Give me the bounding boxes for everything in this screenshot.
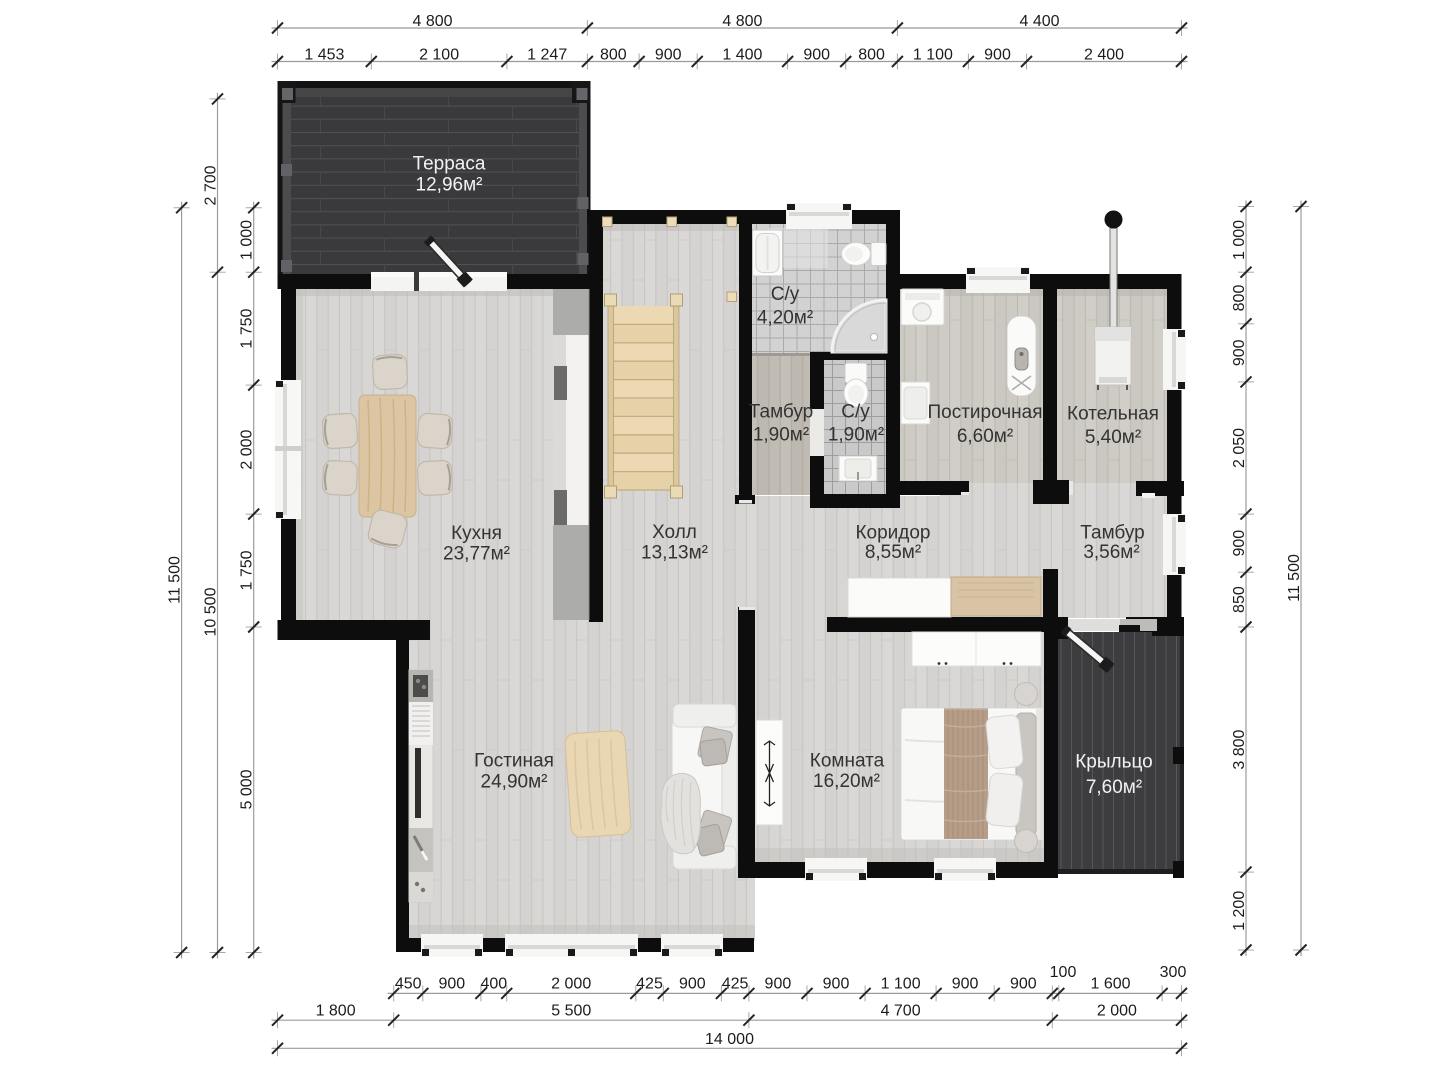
svg-text:10 500: 10 500 xyxy=(203,587,220,636)
svg-text:6,60м²: 6,60м² xyxy=(957,426,1013,447)
svg-text:1,90м²: 1,90м² xyxy=(828,425,884,446)
svg-text:Холл: Холл xyxy=(652,522,697,543)
svg-text:900: 900 xyxy=(803,47,830,64)
svg-text:100: 100 xyxy=(1050,964,1077,981)
svg-text:1 453: 1 453 xyxy=(304,47,344,64)
svg-text:Тамбур: Тамбур xyxy=(749,402,814,423)
svg-text:13,13м²: 13,13м² xyxy=(641,543,708,564)
svg-text:800: 800 xyxy=(858,47,885,64)
svg-text:1 000: 1 000 xyxy=(239,220,256,260)
svg-text:1 800: 1 800 xyxy=(316,1003,356,1020)
svg-text:900: 900 xyxy=(1010,976,1037,993)
svg-text:14 000: 14 000 xyxy=(705,1031,754,1048)
svg-text:2 700: 2 700 xyxy=(203,165,220,205)
svg-text:900: 900 xyxy=(1231,530,1248,557)
svg-text:Комната: Комната xyxy=(810,751,885,772)
svg-text:Кухня: Кухня xyxy=(451,523,502,544)
svg-text:450: 450 xyxy=(395,976,422,993)
svg-text:400: 400 xyxy=(480,976,507,993)
svg-text:900: 900 xyxy=(655,47,682,64)
svg-text:425: 425 xyxy=(722,976,749,993)
svg-text:С/у: С/у xyxy=(771,284,800,305)
svg-text:2 100: 2 100 xyxy=(419,47,459,64)
svg-text:4,20м²: 4,20м² xyxy=(757,308,813,329)
svg-text:5 500: 5 500 xyxy=(551,1003,591,1020)
svg-text:4 800: 4 800 xyxy=(722,13,762,30)
svg-text:4 700: 4 700 xyxy=(881,1003,921,1020)
svg-text:11 500: 11 500 xyxy=(1286,554,1303,602)
svg-text:Крыльцо: Крыльцо xyxy=(1075,752,1153,773)
svg-text:1 750: 1 750 xyxy=(239,550,256,590)
svg-text:Тамбур: Тамбур xyxy=(1080,523,1145,544)
svg-text:Коридор: Коридор xyxy=(855,523,930,544)
svg-text:2 000: 2 000 xyxy=(239,429,256,469)
svg-text:3 800: 3 800 xyxy=(1231,729,1248,769)
svg-text:900: 900 xyxy=(1231,339,1248,366)
svg-text:2 400: 2 400 xyxy=(1084,47,1124,64)
svg-text:23,77м²: 23,77м² xyxy=(443,544,510,565)
svg-text:Котельная: Котельная xyxy=(1067,404,1159,425)
svg-text:11 500: 11 500 xyxy=(167,556,184,604)
svg-text:850: 850 xyxy=(1231,586,1248,613)
svg-text:Гостиная: Гостиная xyxy=(474,751,554,772)
svg-text:5 000: 5 000 xyxy=(239,769,256,809)
svg-text:1 400: 1 400 xyxy=(722,47,762,64)
svg-text:1 000: 1 000 xyxy=(1231,220,1248,260)
svg-text:800: 800 xyxy=(600,47,627,64)
svg-text:Терраса: Терраса xyxy=(413,154,486,175)
svg-text:1 750: 1 750 xyxy=(239,308,256,348)
svg-text:4 800: 4 800 xyxy=(412,13,452,30)
svg-text:2 000: 2 000 xyxy=(1097,1003,1137,1020)
svg-text:1 100: 1 100 xyxy=(881,976,921,993)
svg-text:4 400: 4 400 xyxy=(1019,13,1059,30)
svg-text:2 050: 2 050 xyxy=(1231,428,1248,468)
svg-text:1 247: 1 247 xyxy=(527,47,567,64)
svg-text:900: 900 xyxy=(765,976,792,993)
svg-text:16,20м²: 16,20м² xyxy=(813,771,880,792)
svg-text:900: 900 xyxy=(823,976,850,993)
svg-text:5,40м²: 5,40м² xyxy=(1085,427,1141,448)
svg-text:900: 900 xyxy=(438,976,465,993)
svg-text:1 200: 1 200 xyxy=(1231,891,1248,931)
svg-text:С/у: С/у xyxy=(841,402,870,423)
svg-text:24,90м²: 24,90м² xyxy=(481,772,548,793)
svg-text:7,60м²: 7,60м² xyxy=(1086,777,1142,798)
svg-text:900: 900 xyxy=(952,976,979,993)
svg-text:8,55м²: 8,55м² xyxy=(865,542,921,563)
svg-text:3,56м²: 3,56м² xyxy=(1083,542,1139,563)
svg-text:2 000: 2 000 xyxy=(551,976,591,993)
svg-text:1 600: 1 600 xyxy=(1090,976,1130,993)
svg-text:900: 900 xyxy=(984,47,1011,64)
svg-text:800: 800 xyxy=(1231,285,1248,312)
svg-text:Постирочная: Постирочная xyxy=(927,402,1042,423)
svg-text:12,96м²: 12,96м² xyxy=(416,175,483,196)
svg-text:900: 900 xyxy=(679,976,706,993)
svg-text:425: 425 xyxy=(636,976,663,993)
svg-text:300: 300 xyxy=(1160,964,1187,981)
svg-text:1,90м²: 1,90м² xyxy=(753,425,809,446)
svg-text:1 100: 1 100 xyxy=(913,47,953,64)
